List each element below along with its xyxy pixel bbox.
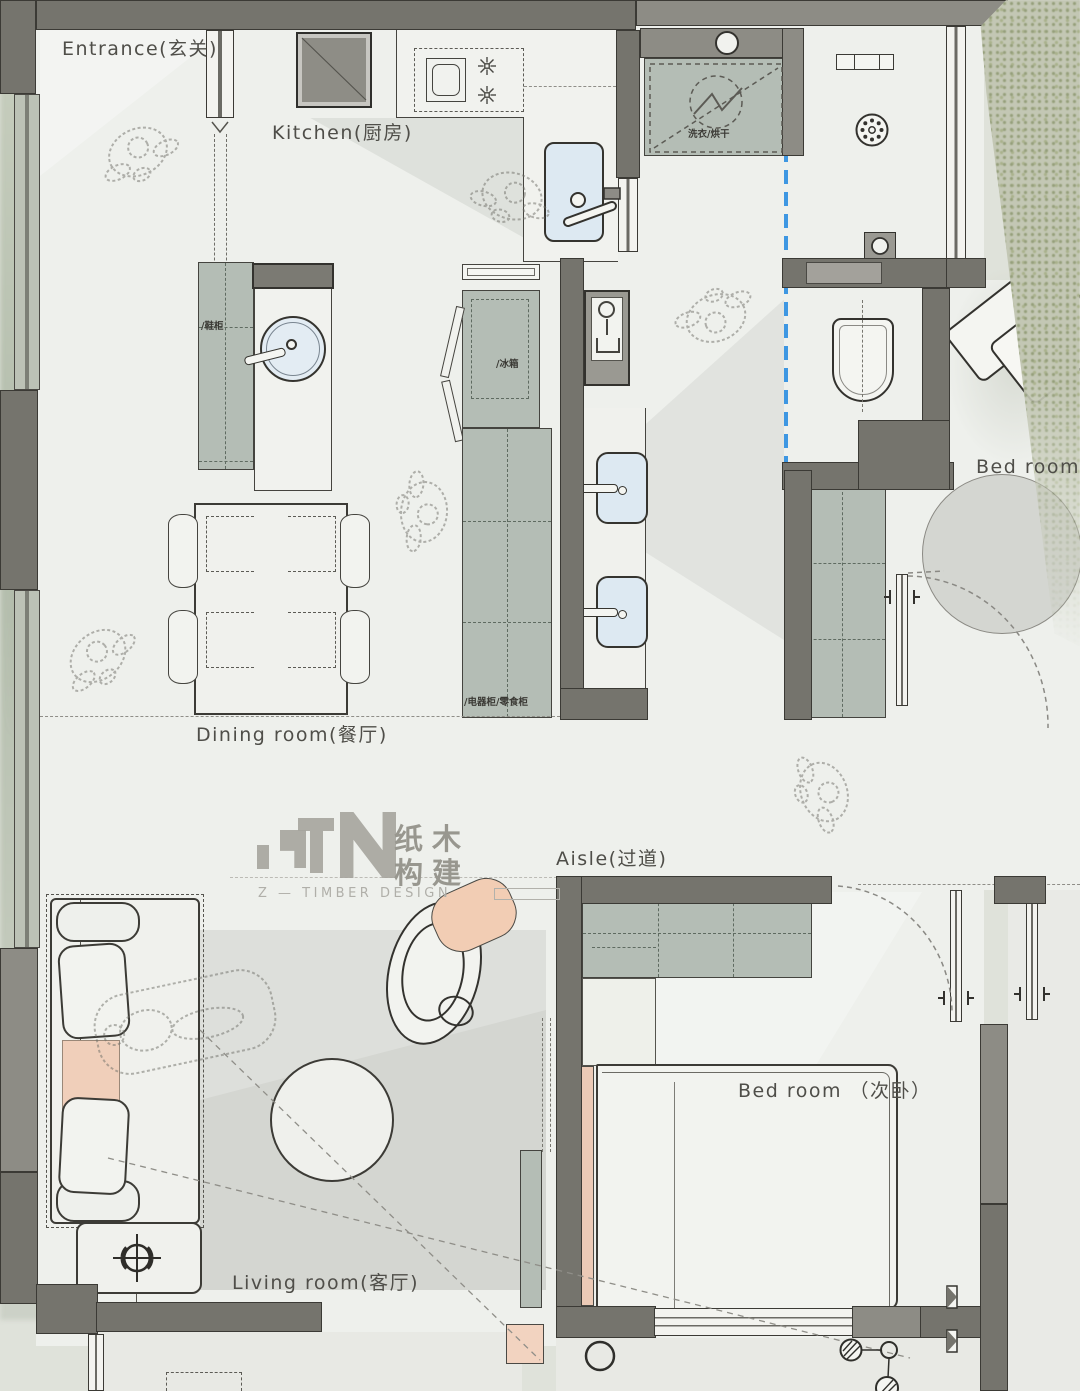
toilet-centerline (862, 300, 863, 412)
zone-line-dining (40, 716, 560, 717)
coffee-table (270, 1058, 394, 1182)
kitchen-main-sink (544, 142, 604, 242)
right-room-door-leaf (1026, 890, 1038, 1020)
label-fridge: /冰箱 (496, 356, 518, 370)
label-kitchen: Kitchen(厨房) (272, 118, 413, 145)
wall-segment (36, 1284, 98, 1334)
basin-faucet-bar (580, 484, 618, 493)
brand-en-text: Z — TIMBER DESIGN (258, 886, 451, 901)
window-left (14, 94, 40, 390)
fridge-top-shelf (462, 264, 540, 280)
kitchen-appliance (296, 32, 372, 108)
wall-segment (560, 258, 584, 720)
window-bedroom2 (654, 1308, 854, 1336)
bedroom2-wardrobe (582, 892, 812, 978)
window-left (14, 590, 40, 948)
curtain-dash-b (550, 1018, 551, 1152)
wall-segment (556, 876, 582, 1338)
wall-segment (640, 28, 802, 58)
label-living: Living room(客厅) (232, 1268, 419, 1295)
wall-segment (0, 0, 36, 94)
dining-chair (340, 610, 370, 684)
floor-plan-canvas: 纸木 构建 Z — TIMBER DESIGN Entrance(玄关) Kit… (0, 0, 1080, 1391)
island-faucet-dot (286, 339, 297, 350)
shower-shelf (836, 54, 894, 70)
tv-cabinet-strip (520, 1150, 542, 1308)
brand-en-box (494, 888, 560, 900)
sofa-armrest (56, 902, 140, 942)
master-door-leaf (896, 574, 908, 706)
island-counter-cap (252, 263, 334, 289)
chair-seat-outline (288, 516, 336, 572)
wall-segment (560, 688, 648, 720)
label-shoe-cabinet: /鞋柜 (201, 318, 223, 332)
label-appliance-cabinet: /电器柜/零食柜 (464, 694, 528, 708)
label-laundry: 洗衣/烘干 (688, 126, 729, 140)
wall-segment (0, 390, 38, 590)
wall-segment (858, 420, 950, 490)
basin-faucet-dot (618, 610, 627, 619)
zone-line-master (858, 884, 1080, 885)
window-bathroom-right (946, 26, 966, 262)
wall-segment (980, 1024, 1008, 1204)
chair-seat-outline (206, 612, 254, 668)
wall-segment (0, 1172, 38, 1304)
toilet (832, 318, 894, 402)
wall-segment (556, 1306, 656, 1338)
chair-seat-outline (206, 516, 254, 572)
dining-chair (168, 514, 198, 588)
balcony-dashed-box (166, 1372, 242, 1391)
floor-balcony-left (96, 1332, 522, 1391)
laundry-cabinet (644, 58, 786, 156)
label-dining: Dining room(餐厅) (196, 720, 388, 747)
wall-segment (980, 1204, 1008, 1391)
wall-segment (0, 948, 38, 1172)
wall-segment (994, 876, 1046, 904)
label-entrance: Entrance(玄关) (62, 34, 218, 61)
floor-right-room (1008, 890, 1080, 1391)
appliance-pantry-cabinet (462, 428, 552, 718)
wall-segment (636, 0, 1008, 26)
balcony-stool (506, 1324, 544, 1364)
wall-segment (616, 30, 640, 178)
basin-faucet-bar (580, 608, 618, 617)
label-bedroom-master: Bed room (976, 456, 1080, 478)
basin-faucet-dot (618, 486, 627, 495)
wall-segment (36, 0, 636, 30)
kitchen-pocket-door (618, 178, 638, 252)
wall-segment (782, 28, 804, 156)
mop-sink (584, 290, 630, 386)
kitchen-small-sink-bowl (432, 64, 460, 96)
wall-segment (852, 1306, 922, 1338)
brand-logo-icon (298, 818, 334, 831)
floor-balcony-bottom (556, 1338, 984, 1391)
brand-logo-icon (310, 831, 323, 873)
wall-segment (806, 262, 882, 284)
wall-segment (920, 1306, 984, 1338)
wall-segment (556, 876, 832, 904)
sofa-cushion (58, 1096, 131, 1195)
wall-segment (96, 1302, 322, 1332)
dining-chair (168, 610, 198, 684)
bedroom2-door-leaf (950, 890, 962, 1022)
shower-glass-line (784, 148, 788, 472)
brand-logo-icon (257, 845, 269, 869)
dining-chair (340, 514, 370, 588)
counter-dash-extension (524, 86, 616, 87)
wall-segment (784, 470, 812, 720)
shower-corner-drain (864, 232, 896, 260)
bedroom2-desk (582, 978, 656, 1066)
label-bedroom-secondary: Bed room （次卧） (738, 1076, 932, 1103)
chair-seat-outline (288, 612, 336, 668)
window-balcony-left (88, 1334, 104, 1391)
sofa-cushion (57, 942, 131, 1041)
wall-segment (946, 258, 986, 288)
shoe-cabinet (198, 262, 254, 470)
label-aisle: Aisle(过道) (556, 844, 667, 871)
curtain-dash-a (542, 1018, 543, 1152)
